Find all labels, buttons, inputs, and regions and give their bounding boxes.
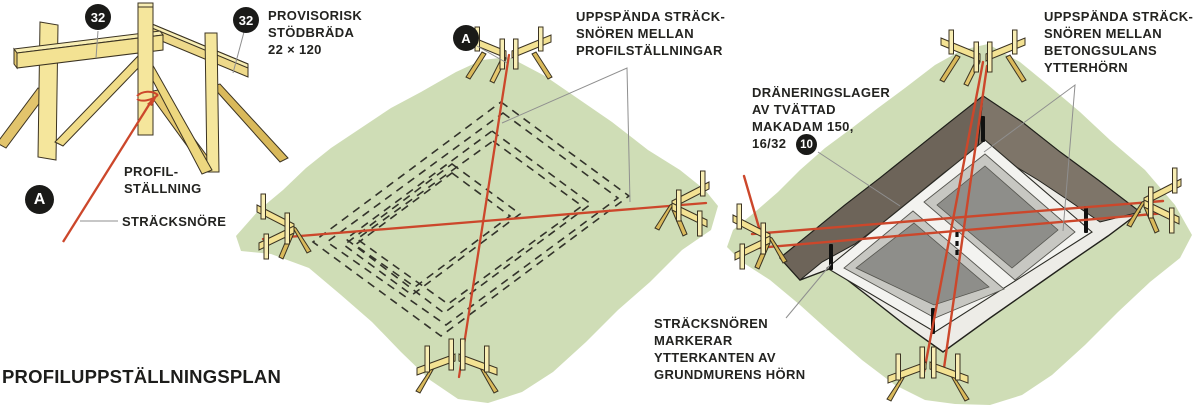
label-provisorisk-stodbrada: PROVISORISK STÖDBRÄDA 22 × 120 <box>268 7 362 58</box>
badge-32-left: 32 <box>85 4 111 30</box>
badge-a-detail: A <box>25 185 54 214</box>
label-stracksnore: STRÄCKSNÖRE <box>122 213 226 230</box>
label-strings-mark-corners: STRÄCKSNÖREN MARKERAR YTTERKANTEN AV GRU… <box>654 315 806 383</box>
label-strings-between-footing-corners: UPPSPÄNDA STRÄCK- SNÖREN MELLAN BETONGSU… <box>1044 8 1193 76</box>
diagram-graphics <box>0 0 1200 405</box>
figure-title: PROFILUPPSTÄLLNINGSPLAN <box>2 366 281 388</box>
label-profilstallning: PROFIL- STÄLLNING <box>124 163 202 197</box>
label-strings-between-profiles: UPPSPÄNDA STRÄCK- SNÖREN MELLAN PROFILST… <box>576 8 725 59</box>
badge-10-drainage: 10 <box>796 134 817 155</box>
ground-middle <box>236 57 718 403</box>
label-drainage-layer: DRÄNERINGSLAGER AV TVÄTTAD MAKADAM 150, … <box>752 84 890 152</box>
profile-plan-view <box>236 27 718 403</box>
badge-a-plan: A <box>453 25 479 51</box>
profile-setup-plan-figure: PROVISORISK STÖDBRÄDA 22 × 120 PROFIL- S… <box>0 0 1200 405</box>
badge-32-right: 32 <box>233 7 259 33</box>
